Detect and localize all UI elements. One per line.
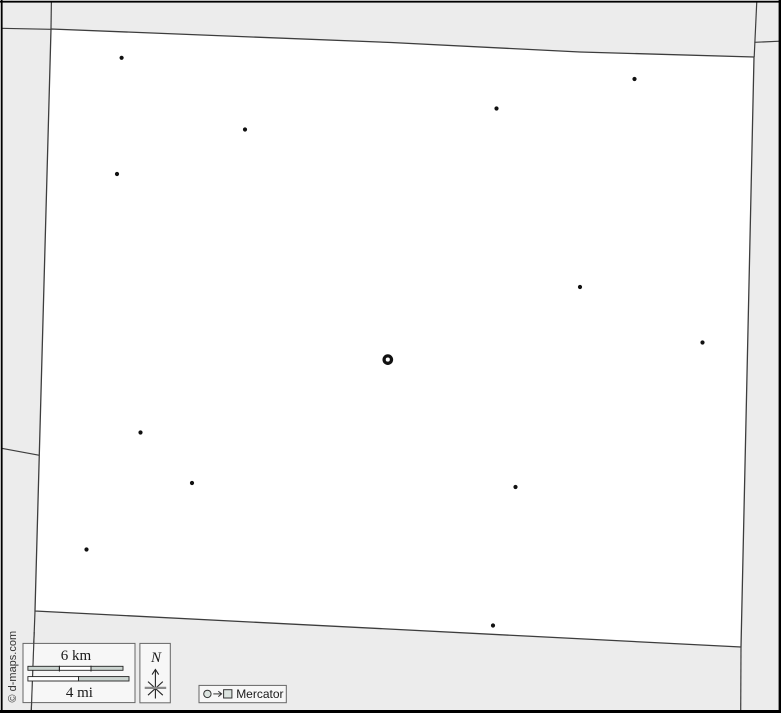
svg-text:© d-maps.com: © d-maps.com xyxy=(7,631,19,703)
svg-text:4 mi: 4 mi xyxy=(66,685,93,701)
svg-text:N: N xyxy=(150,650,162,666)
svg-text:6 km: 6 km xyxy=(61,648,92,664)
svg-text:Mercator: Mercator xyxy=(236,687,283,701)
